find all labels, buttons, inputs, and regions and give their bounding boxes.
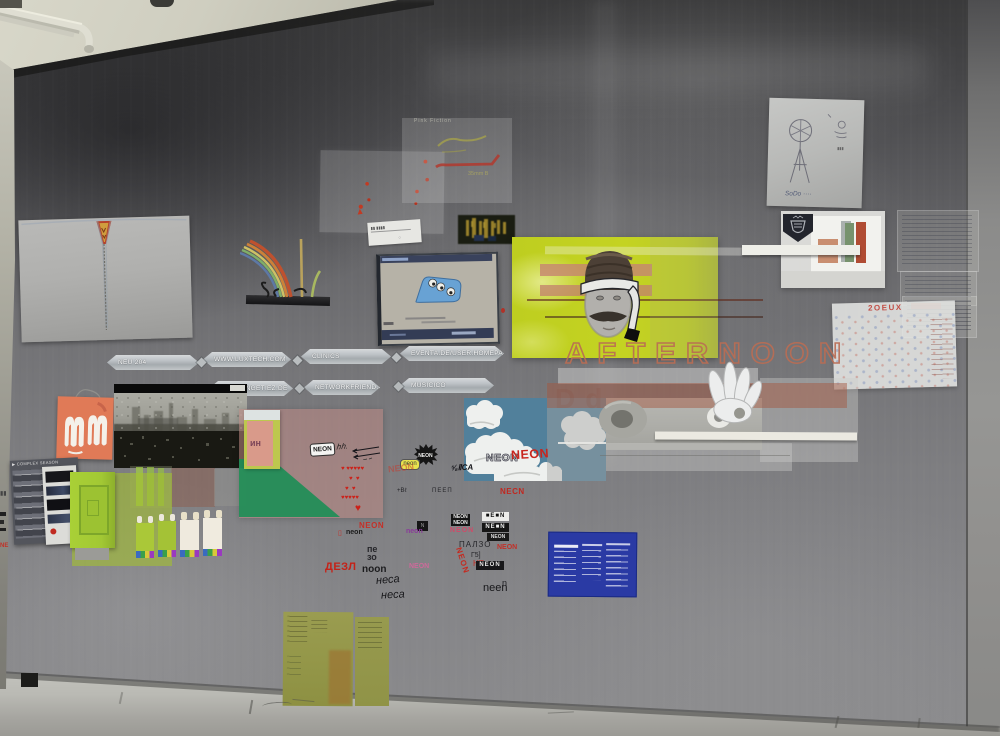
svg-text:35mm B: 35mm B	[468, 171, 489, 177]
svg-text:NEON: NEON	[418, 453, 433, 459]
svg-text:▮▮▮: ▮▮▮	[837, 146, 844, 151]
svg-text:SoDo ····: SoDo ····	[785, 190, 812, 198]
